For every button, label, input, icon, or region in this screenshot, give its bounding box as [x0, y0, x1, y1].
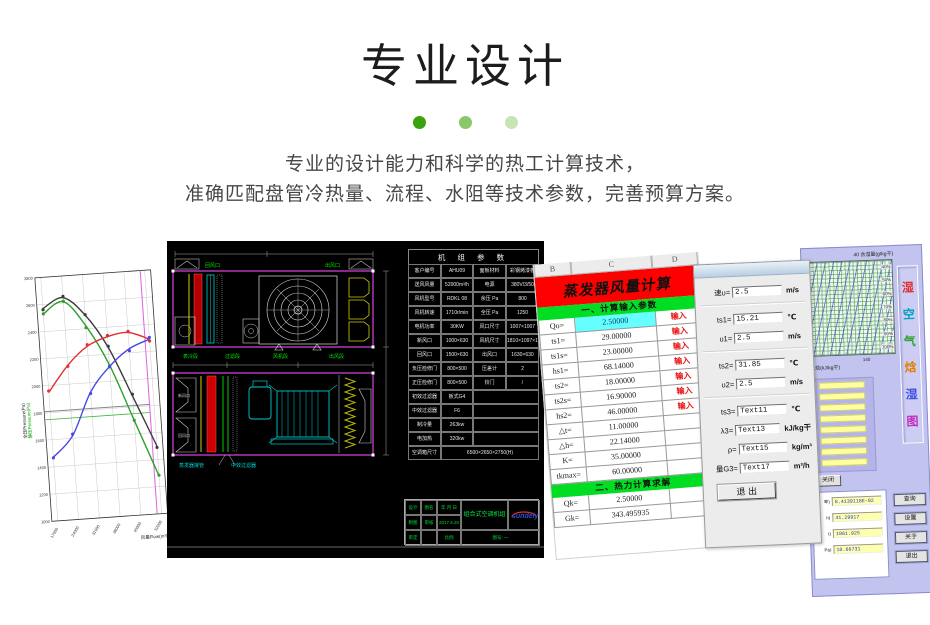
cad-cell-value: 320kw	[441, 432, 473, 446]
cad-cell-label: 送风风量	[408, 278, 441, 292]
field-input[interactable]: 2.5	[732, 284, 782, 297]
x-tick-label: 31000	[91, 523, 101, 536]
y-tick-label: 1400	[37, 465, 47, 471]
window-button-2[interactable]: 关于	[895, 531, 927, 544]
cad-table-row: 送风风量52000m³/h电源380V/3/50	[408, 278, 539, 292]
humidity-line-label: 50%	[881, 277, 892, 282]
cad-table-row: 新风口1000×630风机尺寸1810×1097×1810	[408, 334, 539, 348]
field-unit: ℃	[791, 404, 800, 413]
cad-section-label-0: 表冷段	[183, 353, 198, 360]
cad-section-label-2: 风机段	[273, 353, 288, 360]
curve-动压	[46, 339, 158, 457]
field-label: ρ=	[707, 444, 737, 454]
cad-cell-label: 新风口	[408, 334, 441, 348]
cad-cell-label: 客户编号	[408, 264, 441, 278]
titleblock-cell: 审定	[405, 530, 421, 546]
dialog-field-row: υ1=2.5m/s	[702, 328, 808, 347]
curve-功率	[45, 331, 153, 393]
cad-cell-value: RDKL 08	[441, 292, 473, 306]
cad-cell-value: 1250	[506, 306, 539, 320]
cad-cell-empty	[473, 418, 539, 432]
cad-table-row: 客户编号AHU09面板材料彩钢烤漆板	[408, 264, 539, 278]
y-tick-label: 1800	[33, 411, 43, 417]
cad-section-label-1: 过滤段	[225, 353, 240, 360]
cad-bottom-label-1: 中效过滤器	[231, 462, 256, 469]
cad-top-label-right: 出风口	[325, 262, 340, 269]
cad-cell-label: 余压 Pa	[473, 292, 506, 306]
fan-curve-chart-panel: 1000120014001600180020002200240026002800…	[10, 261, 179, 553]
cad-table-row: 制冷量263kw	[408, 418, 539, 432]
humidity-line-label: 70%	[882, 304, 893, 309]
x-tick-label: 17000	[49, 526, 59, 539]
group-separator	[703, 347, 808, 354]
cell-label: tkmax=	[550, 467, 588, 485]
page-title: 专业设计	[0, 30, 930, 96]
cad-cell-value: 1007×1007	[506, 320, 539, 334]
field-input[interactable]: Text11	[737, 403, 787, 416]
dialog-body: 速υ=2.5m/sts1=15.21℃υ1=2.5m/sts2=31.85℃υ2…	[694, 274, 819, 502]
cad-cell-value: 263kw	[441, 418, 473, 432]
result-list-bar	[821, 447, 867, 456]
value-field-row: t)1061.925	[817, 527, 884, 538]
cad-cell-value: AHU09	[441, 264, 473, 278]
section-dot-0	[413, 116, 426, 129]
cad-cell-label: 压差计	[473, 362, 506, 376]
cad-cell-value: 1000×630	[441, 334, 473, 348]
cad-cell-value: 1710r/min	[441, 306, 473, 320]
field-input[interactable]: Text17	[740, 460, 790, 473]
cad-cell-label: 中效过滤器	[408, 404, 441, 418]
cad-cell-label: 出风口	[473, 348, 506, 362]
field-unit: m/s	[788, 331, 801, 341]
titleblock-cell: 制图	[405, 515, 421, 530]
dialog-field-row: ρ=Text15kg/m³	[707, 439, 813, 458]
vertical-title-char: 气	[904, 335, 916, 347]
cad-cell-label: 全压 Pa	[473, 306, 506, 320]
cad-cell-label: 制冷量	[408, 418, 441, 432]
cad-cell-label: 空调箱尺寸	[408, 446, 441, 460]
cad-section-label-3: 出风段	[329, 353, 344, 360]
dialog-field-row: ts2=31.85℃	[703, 355, 809, 374]
result-list-bar	[819, 392, 865, 401]
grid-line-y	[39, 324, 155, 332]
cad-table-row: 初效过滤器板式G4	[408, 390, 539, 404]
result-list-bar	[819, 381, 865, 390]
x-tick-label: 24000	[70, 525, 80, 538]
cad-table-row: 负压检修门800×500压差计2	[408, 362, 539, 376]
unit-parameters-table: 机 组 参 数 客户编号AHU09面板材料彩钢烤漆板送风风量52000m³/h电…	[408, 249, 539, 460]
cad-cell-label: 风口尺寸	[473, 320, 506, 334]
titleblock-cell: 比例	[437, 530, 461, 546]
cad-cell-value: /	[506, 376, 539, 390]
logo-text: sundely	[512, 513, 539, 520]
dialog-field-row: 量G3=Text17m³/h	[707, 458, 813, 477]
titleblock-cell	[421, 530, 437, 546]
cad-cell-value: 52000m³/h	[441, 278, 473, 292]
y-tick-label: 1200	[39, 492, 49, 498]
cad-cell-value: 1630×630	[506, 348, 539, 362]
titleblock-cell: 年 月 日	[437, 500, 461, 515]
evaporator-airflow-sheet: B C D 蒸发器风量计算 一、计算输入参数 Qo=2.50000输入ts1=2…	[533, 252, 722, 560]
grid-line-x	[103, 273, 120, 516]
grid-line-y	[44, 405, 160, 413]
cad-cell-value: 800×500	[441, 362, 473, 376]
field-input[interactable]: Text15	[738, 441, 788, 454]
cad-table-row: 回风口1500×630出风口1630×630	[408, 348, 539, 362]
unit-parameters-title: 机 组 参 数	[408, 249, 539, 264]
vertical-title-char: 焓	[904, 362, 916, 374]
cad-top-label-left: 回风口	[205, 263, 220, 269]
vertical-title-char: 湿	[902, 281, 914, 293]
x-tick-label: 52000	[153, 519, 163, 532]
field-unit: m³/h	[794, 460, 810, 470]
vertical-title-char: 图	[906, 415, 918, 427]
cad-cell-value: 板式G4	[441, 390, 473, 404]
field-label: ts1=	[701, 315, 731, 325]
fan-chart-svg: 1000120014001600180020002200240026002800…	[10, 261, 179, 553]
cad-bottom-label-0: 蒸发器接管	[179, 462, 204, 469]
field-unit: ℃	[789, 358, 798, 367]
y-tick-label: 2600	[26, 303, 36, 309]
value-field-row: 率)8.4139118E-02	[816, 496, 883, 507]
cad-cell-label: 电加热	[408, 432, 441, 446]
titleblock-date: 2017.6.20	[437, 515, 461, 530]
cell-label: Gk=	[553, 510, 591, 528]
field-unit: kg/m³	[792, 441, 812, 451]
humidity-line-label: 100%	[881, 344, 895, 349]
result-list-bar	[821, 458, 867, 467]
cad-cell-label: 风机尺寸	[473, 334, 506, 348]
titleblock-cell: 设计	[405, 500, 421, 515]
cad-table-row: 风机转速1710r/min全压 Pa1250	[408, 306, 539, 320]
ref-line-flow	[140, 271, 157, 514]
cad-cell-value: 800×500	[441, 376, 473, 390]
result-list-bar	[821, 436, 867, 445]
grid-line-y	[46, 432, 162, 440]
cad-cell-label: 风机型号	[408, 292, 441, 306]
y-tick-label: 2200	[29, 357, 39, 363]
cad-cell-label: 回风口	[408, 348, 441, 362]
cad-cell-label: 电源	[473, 278, 506, 292]
group-separator	[705, 393, 810, 400]
field-label: υ1=	[702, 334, 732, 344]
y-tick-label: 1000	[41, 519, 51, 525]
result-values-panel: 率)8.4139118E-02h)41.29917t)1061.925Pa)10…	[811, 489, 889, 580]
cad-table-row: 中效过滤器F6	[408, 404, 539, 418]
cad-cell-label: 风机转速	[408, 306, 441, 320]
cad-cell-label: 初效过滤器	[408, 390, 441, 404]
cad-cell-label: 面板材料	[473, 264, 506, 278]
grid-line-y	[42, 378, 158, 386]
cad-table-row: 电机功率30KW风口尺寸1007×1007	[408, 320, 539, 334]
value-field-row: Pa)10.66731	[817, 543, 884, 554]
section-dot-2	[505, 116, 518, 129]
grid-line-x	[82, 275, 99, 518]
data-point	[155, 446, 158, 449]
cad-cell-label: 电机功率	[408, 320, 441, 334]
cad-table-row: 风机型号RDKL 08余压 Pa800	[408, 292, 539, 306]
section-dots	[0, 116, 930, 129]
cad-cell-label: 正压检修门	[408, 376, 441, 390]
field-label: υ2=	[704, 380, 734, 390]
field-unit: m/s	[790, 376, 803, 386]
value-field[interactable]: 1061.925	[833, 528, 883, 539]
calc-input-dialog: 速υ=2.5m/sts1=15.21℃υ1=2.5m/sts2=31.85℃υ2…	[693, 260, 822, 549]
description-line-1: 专业的设计能力和科学的热工计算技术，	[0, 150, 930, 180]
cad-table-row: 正压检修门800×500铰门/	[408, 376, 539, 390]
y-tick-label: 2800	[24, 275, 34, 281]
dialog-field-row: ts3=Text11℃	[705, 401, 811, 420]
page: 专业设计 专业的设计能力和科学的热工计算技术， 准确匹配盘管冷热量、流程、水阻等…	[0, 0, 930, 625]
humidity-percent-labels: 40%50%60%70%80%90%100%	[878, 264, 894, 349]
cad-cell-empty	[473, 432, 539, 446]
field-unit: kJ/kg干	[784, 421, 811, 433]
window-vertical-title: 湿空气焓湿图	[897, 265, 924, 444]
window-buttons: 查询设置关于退出	[894, 493, 929, 570]
excel-rows: Qo=2.50000输入ts1=29.00000输入ts1s=23.00000输…	[538, 308, 714, 485]
value-field-label: Pa)	[817, 547, 831, 552]
curve-静压	[43, 296, 159, 483]
humidity-line-label: 80%	[882, 317, 893, 322]
result-list-bar	[820, 425, 866, 434]
humidity-line-label: 90%	[883, 331, 894, 336]
titleblock-cell: 审核	[421, 515, 437, 530]
value-field[interactable]: 8.4139118E-02	[832, 496, 882, 507]
humidity-line-label: 40%	[881, 264, 892, 269]
sundely-logo-icon: sundely	[509, 508, 539, 522]
cad-cell-label: 负压检修门	[408, 362, 441, 376]
curve-全压	[42, 292, 157, 454]
field-label: 量G3=	[708, 462, 738, 474]
dialog-field-row: ts1=15.21℃	[701, 309, 807, 328]
field-label: ts3=	[705, 406, 735, 416]
cad-lower-left-label-1: 回风口	[178, 433, 190, 438]
grid-line-y	[41, 351, 157, 359]
field-label: ts2=	[703, 361, 733, 371]
x-tick-label: 45000	[132, 520, 142, 533]
result-list-bar	[819, 403, 865, 412]
value-field[interactable]: 41.29917	[832, 512, 882, 523]
section-description: 专业的设计能力和科学的热工计算技术， 准确匹配盘管冷热量、流程、水阻等技术参数，…	[0, 150, 930, 210]
vertical-title-char: 空	[903, 308, 915, 320]
dialog-field-row: 速υ=2.5m/s	[700, 282, 806, 301]
titleblock-cell: 图名	[421, 500, 437, 515]
window-button-1[interactable]: 设置	[894, 512, 926, 525]
cad-cell-value: F6	[441, 404, 473, 418]
plot-border	[35, 270, 168, 521]
cad-cell-value: 1500×630	[441, 348, 473, 362]
result-list-bar	[820, 414, 866, 423]
cad-cell-value: 6500×2650×2750(H)	[441, 446, 539, 460]
cad-title-block: 设计 图名 年 月 日 组合式空调机组 sundely 制图 审核 2017.6…	[404, 499, 539, 545]
field-input[interactable]: 15.21	[733, 311, 783, 324]
field-input[interactable]: 2.5	[736, 376, 786, 389]
field-unit: ℃	[787, 312, 796, 321]
grid-line-y	[50, 486, 166, 494]
y-tick-label: 2400	[28, 330, 38, 336]
value-field[interactable]: 10.66731	[833, 544, 883, 555]
sheet-title: 蒸发器风量计算	[562, 272, 672, 302]
field-label: λ3=	[706, 426, 733, 436]
cad-cell-value: 2	[506, 362, 539, 376]
grid-line-y	[48, 459, 164, 467]
company-logo: sundely	[508, 500, 540, 530]
window-button-3[interactable]: 退出	[896, 550, 928, 563]
x-tick-label: 38000	[112, 522, 122, 535]
cad-cell-empty	[473, 404, 539, 418]
cad-cell-empty	[473, 390, 539, 404]
drawing-name: 组合式空调机组	[461, 500, 508, 530]
dialog-field-row: υ2=2.5m/s	[704, 374, 810, 393]
value-field-row: h)41.29917	[816, 511, 883, 522]
result-list-panel	[810, 377, 877, 473]
cad-table-row: 电加热320kw	[408, 432, 539, 446]
field-input[interactable]: 2.5	[734, 330, 784, 343]
cad-cell-label: 铰门	[473, 376, 506, 390]
y-tick-label: 2000	[31, 384, 41, 390]
cad-table-row: 空调箱尺寸6500×2650×2750(H)	[408, 446, 539, 460]
exit-button[interactable]: 退 出	[717, 482, 776, 501]
psychrometric-window: 40 含湿量(g/kg干) 40%50%60%70%80%90%100% 140…	[800, 244, 930, 597]
enthalpy-axis-label: 焓(kJ/kg干)	[815, 364, 840, 372]
enthalpy-tick-label: 140	[863, 357, 871, 362]
psychrometric-chart: 40%50%60%70%80%90%100%	[807, 259, 895, 357]
field-unit: m/s	[786, 285, 799, 295]
sheet-number: 图号: 一	[461, 530, 540, 546]
vertical-title-char: 湿	[905, 388, 917, 400]
field-label: 速υ=	[700, 287, 730, 299]
humidity-line-label: 60%	[881, 291, 892, 296]
cad-table-body: 客户编号AHU09面板材料彩钢烤漆板送风风量52000m³/h电源380V/3/…	[408, 264, 539, 460]
field-input[interactable]: Text13	[735, 423, 781, 436]
dialog-field-row: λ3=Text13kJ/kg干	[706, 420, 812, 439]
cad-cell-value: 30KW	[441, 320, 473, 334]
y-tick-label: 1600	[35, 438, 45, 444]
cad-lower-left-label-0: 新风口	[178, 392, 190, 398]
window-button-0[interactable]: 查询	[894, 493, 926, 506]
description-line-2: 准确匹配盘管冷热量、流程、水阻等技术参数，完善预算方案。	[0, 180, 930, 210]
cad-drawing-panel: 回风口 出风口	[167, 241, 544, 558]
group-separator	[701, 301, 806, 308]
cad-cell-value: 1810×1097×1810	[506, 334, 539, 348]
section-dot-1	[459, 116, 472, 129]
field-input[interactable]: 31.85	[735, 357, 785, 370]
